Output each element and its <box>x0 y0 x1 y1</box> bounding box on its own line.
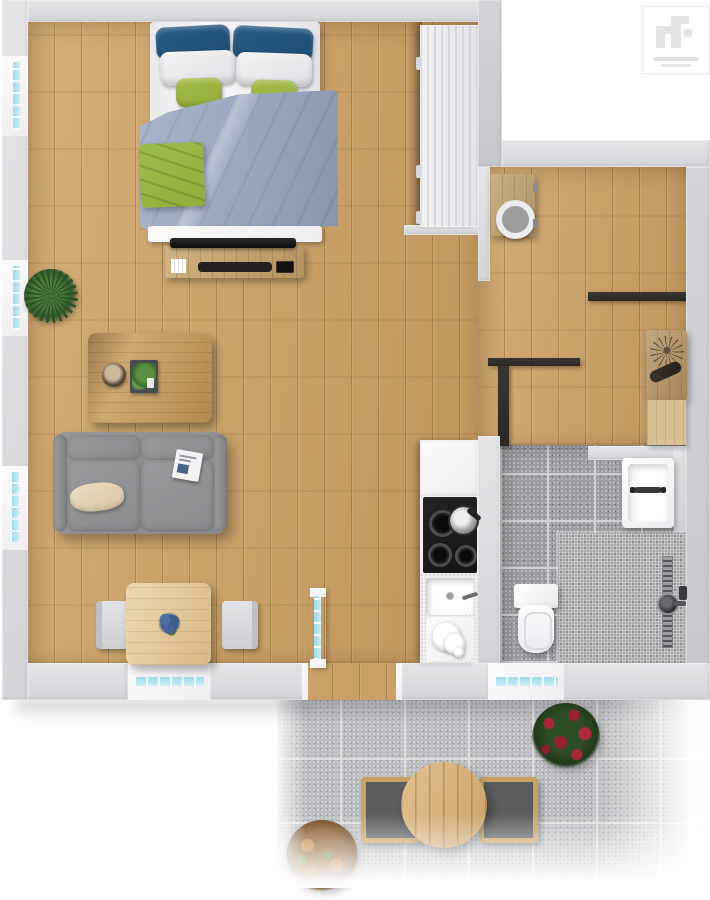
kitchen-counter-cabinet <box>421 442 477 496</box>
window-glass <box>12 472 19 544</box>
bathroom-faucet <box>634 487 662 493</box>
brand-logo-card <box>642 6 710 74</box>
cabinet-handle <box>416 57 421 70</box>
faucet-handle <box>661 487 666 493</box>
cabinet-hinge <box>533 183 537 192</box>
dark-partition-wall <box>588 292 686 301</box>
window-glass <box>134 677 204 686</box>
kitchen-tall-cabinets <box>420 25 478 227</box>
brand-logo-mark-icon <box>654 14 698 54</box>
bathroom-sink-basin <box>628 464 668 522</box>
sofa-back-cushion <box>67 435 140 459</box>
sofa-arm <box>53 435 67 531</box>
sofa-arm <box>213 435 227 531</box>
console-desk-lower <box>647 400 686 445</box>
wall-right-upper <box>478 0 502 167</box>
coffee-table-fern-tray <box>130 360 158 393</box>
cooktop-burner <box>428 543 452 567</box>
window-glass <box>13 62 20 130</box>
floor-plant <box>24 269 78 323</box>
wall-top <box>28 0 502 22</box>
door-jamb <box>396 663 402 700</box>
sink-drain <box>446 592 454 600</box>
wall-right <box>686 167 710 700</box>
patio-door-leaf <box>310 588 326 668</box>
shower-control <box>679 586 687 600</box>
logo-tagline-line <box>654 57 698 61</box>
wall-utility-side <box>478 167 490 281</box>
wall-bottom-a <box>28 663 128 700</box>
washer-round-door <box>496 200 535 239</box>
magazine <box>172 449 204 482</box>
shower-arm <box>674 601 686 606</box>
coffee-table-bowl <box>102 363 126 387</box>
floor-plan-scene <box>0 0 710 900</box>
faucet-handle <box>630 487 635 493</box>
wall-bottom-b <box>210 663 308 700</box>
logo-tagline-line <box>661 64 691 67</box>
wall-bath-sink-side <box>674 446 686 532</box>
dark-partition-wall <box>498 366 509 446</box>
patio-chair-left <box>361 777 420 843</box>
tray-item <box>147 378 154 388</box>
building-shadow <box>16 698 306 720</box>
door-leaf-cap <box>310 659 326 668</box>
bed-green-throw <box>139 142 205 208</box>
patio-door-threshold <box>306 663 398 700</box>
window-glass <box>494 677 558 686</box>
tv-screen <box>170 238 296 248</box>
dining-chair-right <box>222 601 258 649</box>
window-glass <box>13 266 20 330</box>
soundbar <box>198 262 272 272</box>
plate <box>453 646 464 657</box>
media-device <box>276 261 294 273</box>
door-leaf-glass <box>314 596 321 660</box>
wall-bottom-d <box>562 663 710 700</box>
toilet-seat-line <box>524 612 552 650</box>
cabinet-handle <box>416 165 421 178</box>
dining-centerpiece-flowers <box>156 610 182 637</box>
wall-kitchen-bath <box>478 436 500 663</box>
cooktop-burner <box>455 545 477 567</box>
patio-floor <box>276 692 700 888</box>
console-books <box>171 259 186 273</box>
cabinet-handle <box>416 211 421 224</box>
door-jamb <box>302 663 308 700</box>
patio-table <box>401 762 487 848</box>
wall-top-right-wing <box>502 140 710 167</box>
patio-plant-red <box>532 703 600 771</box>
wall-bottom-c <box>398 663 490 700</box>
patio-chair-right <box>479 777 538 843</box>
dark-partition-wall <box>488 358 580 366</box>
patio-shrub-orange <box>286 820 358 892</box>
cabinet-hinge <box>533 219 537 228</box>
